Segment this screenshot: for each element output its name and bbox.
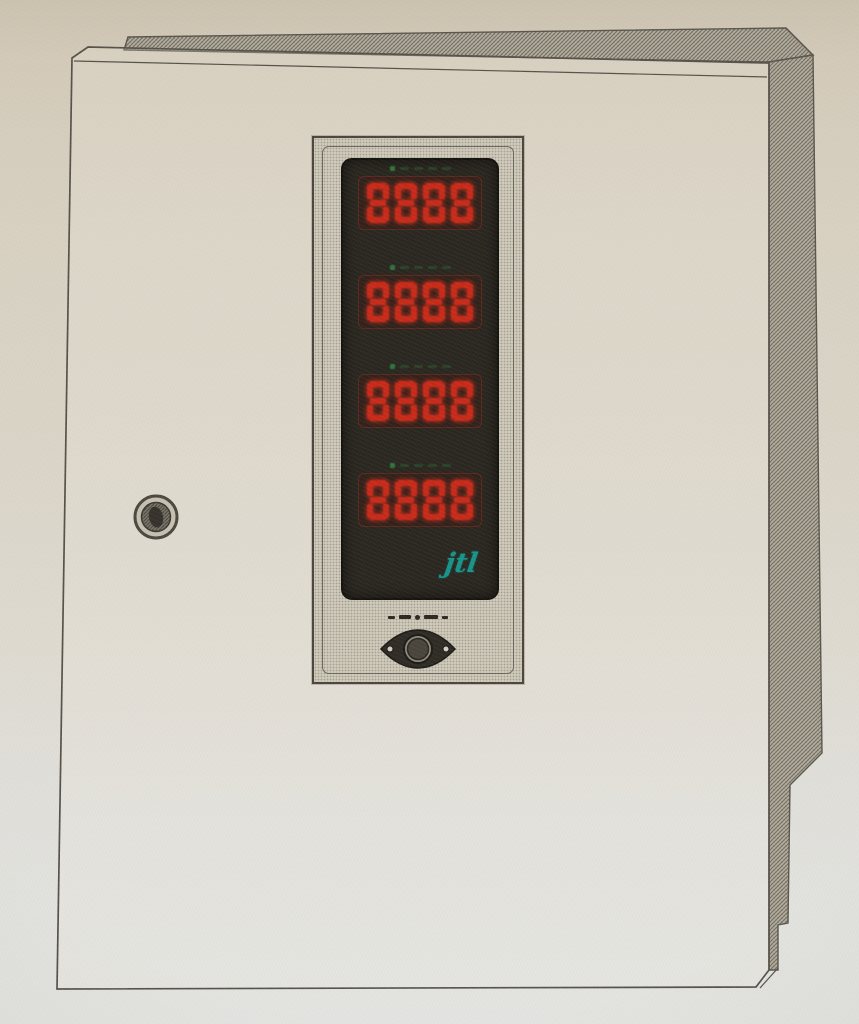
segment-e [451,405,457,419]
display-row [343,260,497,359]
seven-segment-digit [423,183,445,223]
row-indicator-leds [390,460,451,471]
display-row [343,161,497,260]
segment-b [467,383,473,397]
row-indicator-leds [390,163,451,174]
segment-f [451,482,457,496]
segment-g [454,200,470,206]
seven-segment-digit [423,282,445,322]
seven-segment-digit [395,183,417,223]
segment-g [370,299,386,305]
segment-b [467,482,473,496]
segment-g [454,497,470,503]
photo-canvas: { "display": { "rows": [ { "value": "888… [0,0,859,1024]
segment-f [451,284,457,298]
seven-segment-digit [395,282,417,322]
segment-g [426,299,442,305]
segment-b [411,284,417,298]
seven-segment-digit [451,381,473,421]
segment-b [439,185,445,199]
segment-g [398,299,414,305]
seven-segment-digit [451,282,473,322]
segment-e [367,207,373,221]
seven-segment-digit [395,480,417,520]
panel-knob-icon [378,624,458,674]
segment-e [367,405,373,419]
segment-g [398,497,414,503]
segment-f [367,482,373,496]
segment-f [423,482,429,496]
segment-e [395,207,401,221]
segment-g [426,497,442,503]
segment-f [423,185,429,199]
segment-e [451,306,457,320]
segment-e [423,405,429,419]
digit-group [358,374,482,428]
digit-group [358,275,482,329]
segment-g [454,398,470,404]
segment-e [423,504,429,518]
segment-b [467,284,473,298]
segment-e [395,306,401,320]
segment-g [426,398,442,404]
segment-f [395,284,401,298]
segment-e [395,504,401,518]
segment-b [467,185,473,199]
segment-g [426,200,442,206]
cabinet-side-panel [769,55,822,970]
segment-f [367,185,373,199]
scene: jtl [0,0,859,1024]
segment-g [370,497,386,503]
display-window: jtl [341,158,499,600]
brand-logo: jtl [442,548,479,579]
seven-segment-digit [451,183,473,223]
door-lock-icon [135,496,177,538]
segment-b [411,185,417,199]
segment-e [451,207,457,221]
segment-e [451,504,457,518]
segment-f [395,185,401,199]
display-bezel: jtl [312,136,524,684]
display-rows [343,161,497,557]
segment-g [398,200,414,206]
manufacturer-marking [370,610,466,624]
segment-b [439,383,445,397]
seven-segment-digit [423,381,445,421]
seven-segment-digit [367,381,389,421]
digit-group [358,176,482,230]
seven-segment-digit [367,480,389,520]
segment-f [367,383,373,397]
segment-e [367,504,373,518]
display-row [343,458,497,557]
segment-f [451,383,457,397]
segment-g [370,200,386,206]
segment-b [411,383,417,397]
display-row [343,359,497,458]
segment-e [367,306,373,320]
segment-f [423,284,429,298]
segment-b [383,383,389,397]
segment-f [367,284,373,298]
segment-f [451,185,457,199]
seven-segment-digit [367,183,389,223]
segment-g [454,299,470,305]
segment-b [439,284,445,298]
segment-f [395,482,401,496]
segment-g [370,398,386,404]
segment-f [395,383,401,397]
segment-b [411,482,417,496]
digit-group [358,473,482,527]
segment-e [395,405,401,419]
row-indicator-leds [390,262,451,273]
seven-segment-digit [367,282,389,322]
segment-g [398,398,414,404]
seven-segment-digit [451,480,473,520]
seven-segment-digit [423,480,445,520]
segment-b [383,185,389,199]
seven-segment-digit [395,381,417,421]
row-indicator-leds [390,361,451,372]
segment-f [423,383,429,397]
segment-b [439,482,445,496]
segment-b [383,284,389,298]
segment-e [423,207,429,221]
segment-b [383,482,389,496]
segment-e [423,306,429,320]
